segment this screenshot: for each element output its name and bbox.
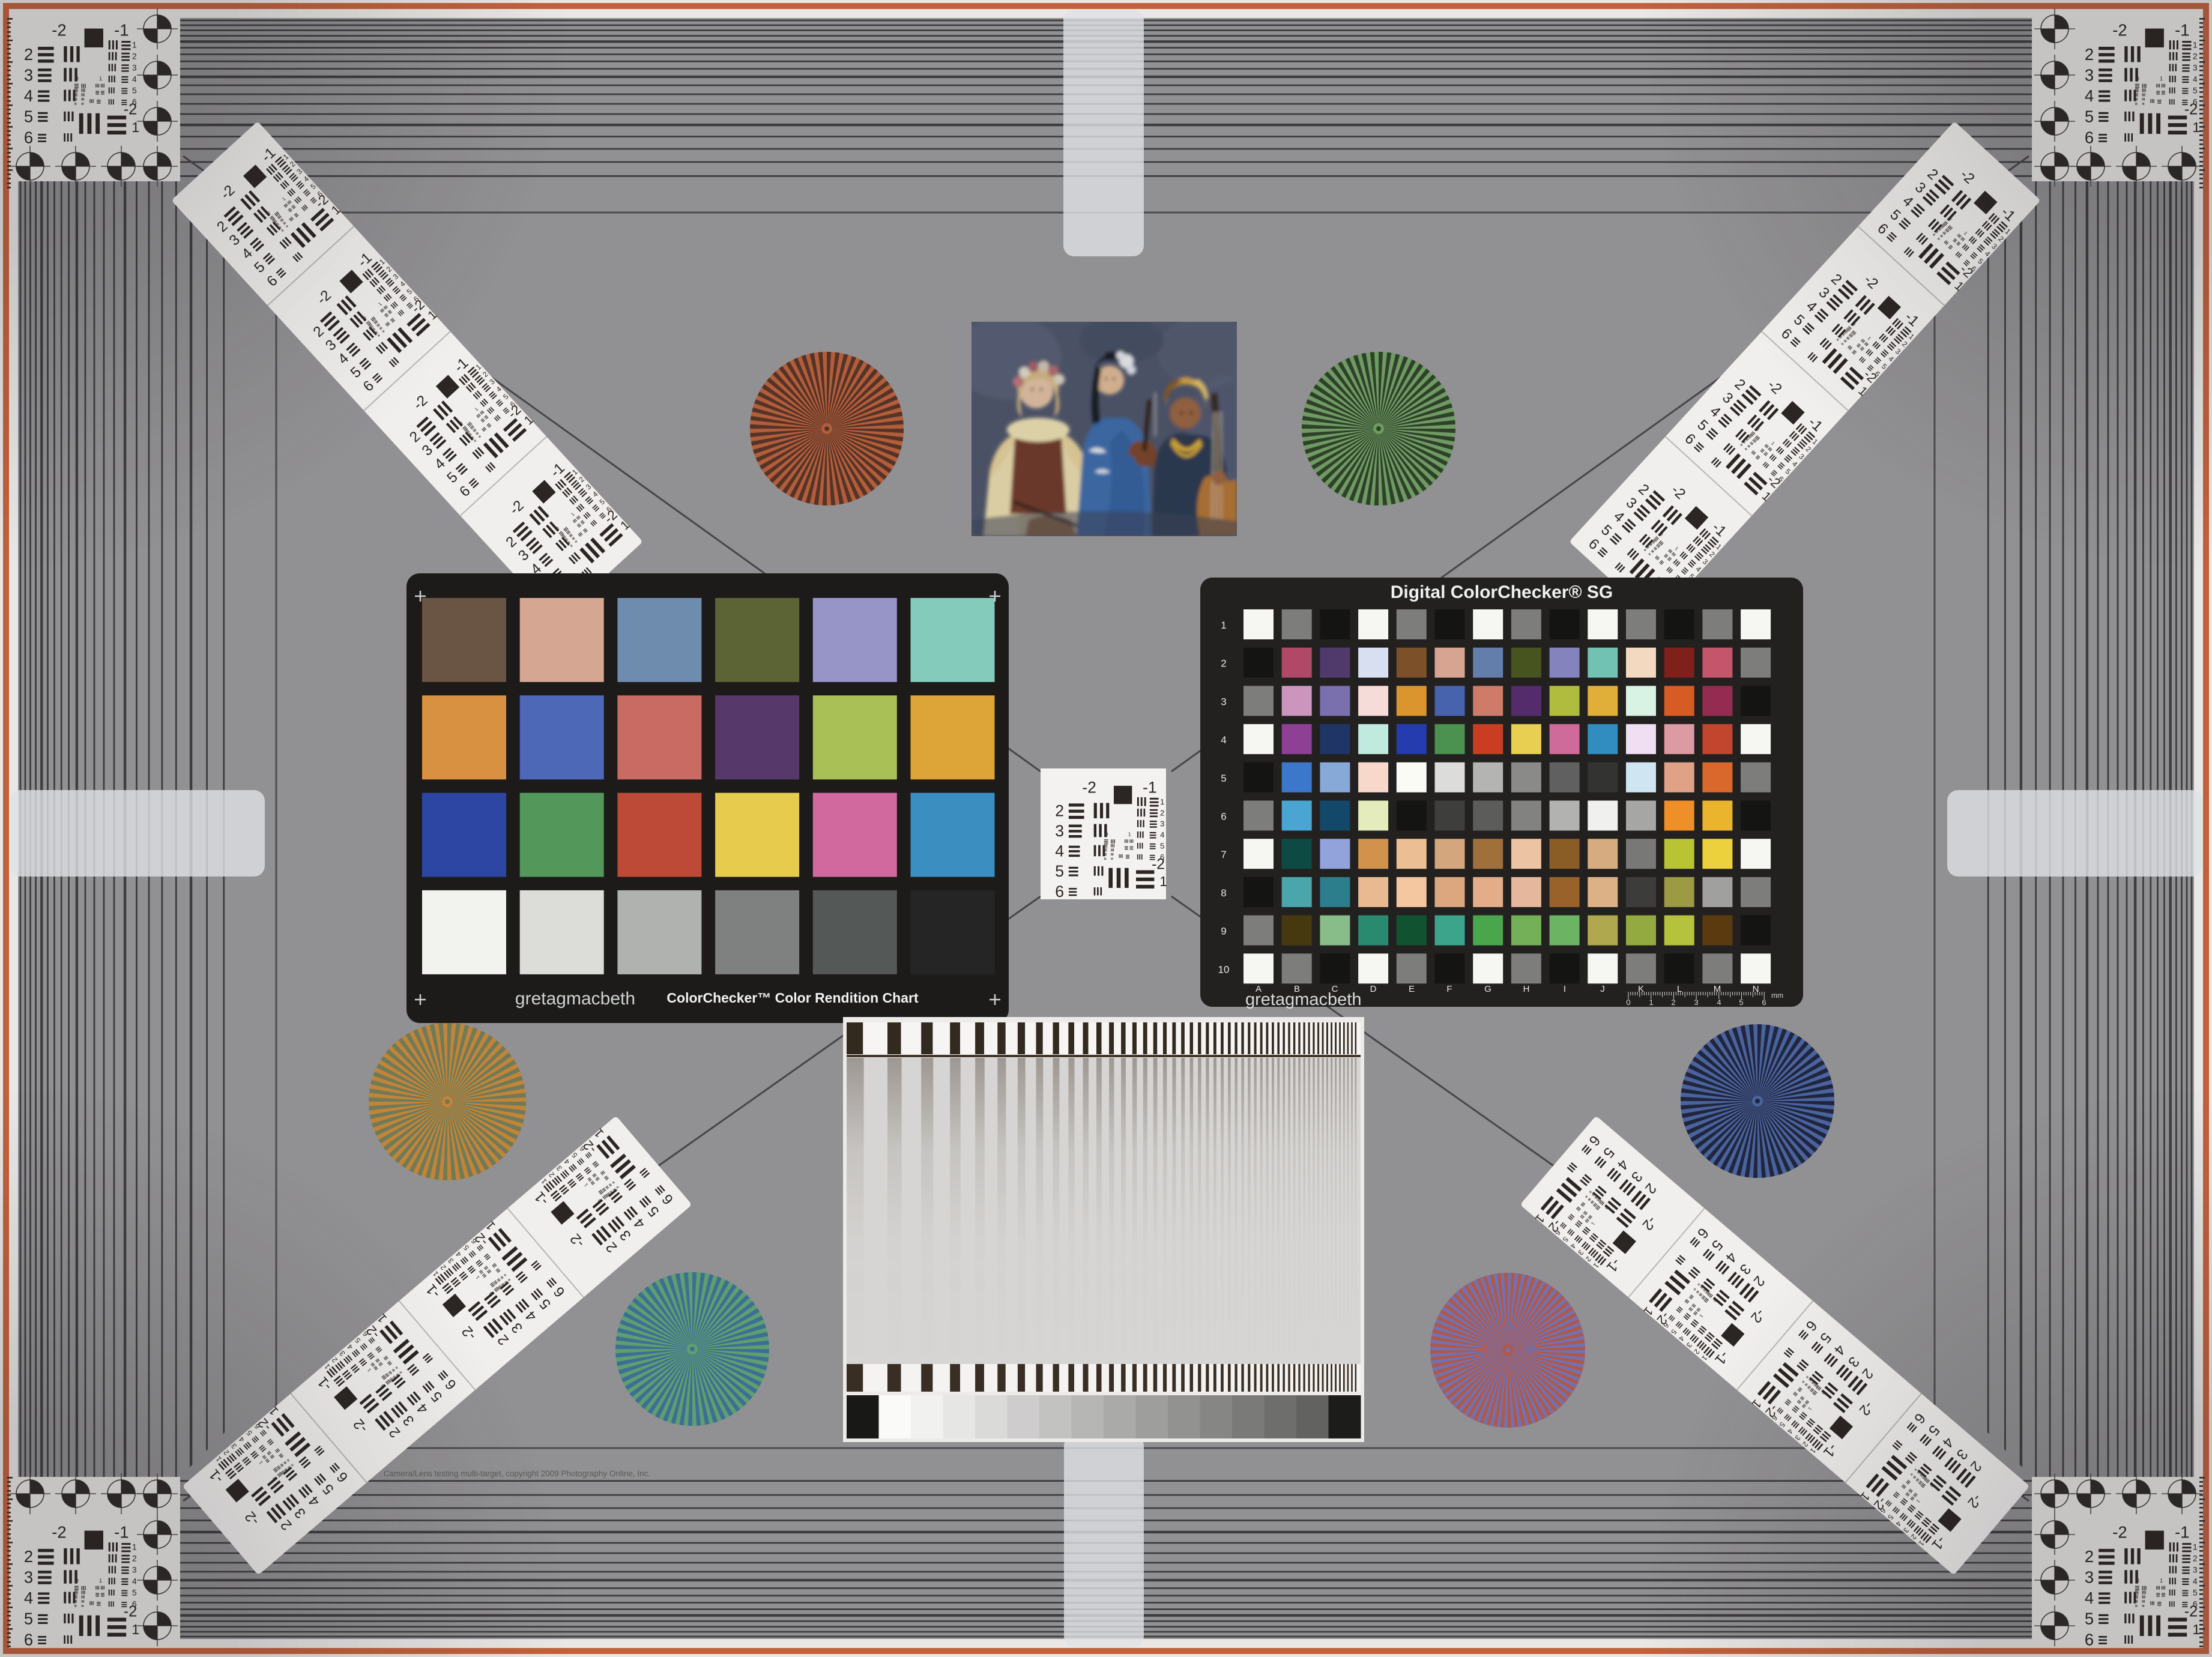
- svg-text:3: 3: [1221, 696, 1226, 707]
- svg-text:gretagmacbeth: gretagmacbeth: [515, 989, 635, 1009]
- svg-text:3: 3: [1694, 998, 1698, 1007]
- svg-text:1: 1: [1221, 620, 1226, 631]
- svg-text:4: 4: [1717, 998, 1721, 1007]
- svg-text:J: J: [1600, 984, 1605, 994]
- svg-text:I: I: [1564, 984, 1566, 994]
- svg-text:2: 2: [1221, 658, 1226, 669]
- svg-text:5: 5: [1739, 998, 1743, 1007]
- svg-text:0: 0: [1626, 998, 1630, 1007]
- svg-text:H: H: [1523, 984, 1530, 994]
- svg-text:6: 6: [1762, 998, 1766, 1007]
- svg-text:Digital ColorChecker® SG: Digital ColorChecker® SG: [1391, 582, 1613, 602]
- svg-text:10: 10: [1218, 964, 1230, 975]
- svg-text:F: F: [1446, 984, 1452, 994]
- svg-text:L: L: [1677, 984, 1682, 994]
- svg-text:G: G: [1484, 984, 1491, 994]
- svg-text:9: 9: [1221, 926, 1226, 937]
- svg-text:gretagmacbeth: gretagmacbeth: [1245, 990, 1361, 1009]
- svg-text:E: E: [1409, 984, 1415, 994]
- svg-text:2: 2: [1671, 998, 1675, 1007]
- svg-text:7: 7: [1221, 849, 1226, 860]
- svg-text:1: 1: [1649, 998, 1653, 1007]
- svg-text:6: 6: [1221, 811, 1226, 822]
- svg-text:mm: mm: [1771, 991, 1783, 1000]
- svg-text:K: K: [1638, 984, 1644, 994]
- svg-text:ColorChecker™ Color Rendition: ColorChecker™ Color Rendition Chart: [666, 990, 918, 1006]
- svg-text:8: 8: [1221, 887, 1226, 899]
- svg-text:N: N: [1753, 984, 1759, 994]
- svg-text:4: 4: [1221, 734, 1226, 746]
- svg-text:D: D: [1370, 984, 1377, 994]
- svg-text:5: 5: [1221, 773, 1226, 784]
